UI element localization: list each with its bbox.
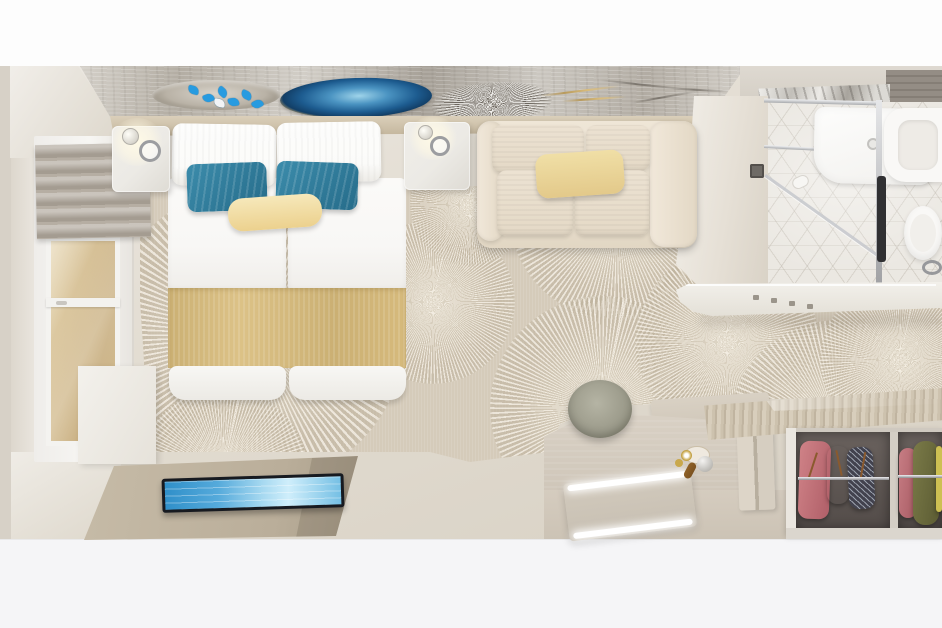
desk-side-panels: [737, 427, 776, 510]
wall-mounted-tv: [162, 473, 345, 513]
chrome-towel-ring: [922, 260, 942, 275]
wall-switch-panel: [750, 164, 764, 178]
bed-foot-right: [289, 366, 406, 400]
gold-cup-small: [675, 459, 683, 467]
toilet: [904, 206, 942, 260]
headboard-art-wall: [70, 62, 752, 124]
yellow-garment: [936, 446, 942, 512]
gold-bed-runner: [168, 288, 406, 368]
hanging-rail-right: [898, 475, 942, 478]
right-lamp-ring: [430, 136, 450, 156]
kettle: [697, 456, 713, 472]
sofa-arm-right: [650, 121, 697, 247]
window-sill: [78, 366, 156, 464]
window-handle: [56, 301, 67, 305]
bed-foot-left: [169, 366, 286, 400]
outer-wall-edge: [0, 66, 11, 539]
round-sage-stool: [568, 380, 632, 438]
hook-dot: [789, 301, 795, 306]
hook-dot: [771, 298, 777, 303]
render-canvas: [0, 0, 942, 628]
tv-screen: [165, 476, 342, 510]
right-lamp-sphere: [418, 125, 433, 140]
hanging-rail-left: [798, 477, 889, 480]
cream-lumbar-pillow: [227, 193, 323, 232]
left-lamp-ring: [139, 140, 161, 162]
yellow-lumbar-pillow: [535, 149, 626, 199]
sink-basin: [898, 120, 938, 170]
vanity-counter: [884, 108, 942, 182]
counter-shadow: [700, 314, 940, 326]
counter-highlight: [686, 284, 936, 286]
hook-dot: [807, 304, 813, 309]
wardrobe-divider: [890, 432, 898, 530]
background-bottom-band: [0, 539, 942, 628]
left-lamp-sphere: [122, 128, 139, 145]
shower-column: [877, 176, 886, 262]
wardrobe-left-edge: [786, 428, 796, 534]
background-top-band: [0, 0, 942, 66]
wardrobe-base: [786, 528, 942, 539]
gold-cup: [681, 450, 692, 461]
hook-dot: [753, 295, 759, 300]
toilet-bowl: [910, 214, 936, 252]
